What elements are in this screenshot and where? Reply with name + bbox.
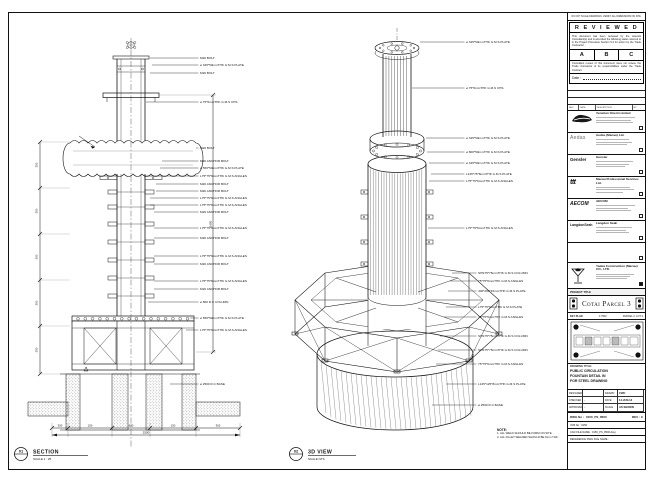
field-value: -	[583, 404, 604, 411]
checkbox	[639, 214, 643, 218]
border-note: DO NOT SCALE DRAWINGS. VERIFY ALL DIMENS…	[568, 13, 645, 21]
date-label: Date :	[572, 76, 581, 80]
consultant-row-venetian: Venetian Orient Limited	[568, 111, 645, 133]
reviewed-status-options: A B C	[570, 49, 643, 61]
checkbox	[639, 236, 643, 240]
checkbox-filled	[639, 282, 643, 286]
field-label: DRAWN	[604, 390, 618, 397]
date-col: DATE	[579, 105, 596, 110]
reviewed-paragraph-2: Consultant review of this document does …	[570, 61, 643, 74]
drawing-sheet: 30015060015030025003503003003003502650 M…	[0, 0, 650, 488]
reviewed-stamp: R E V I E W E D This document has been r…	[569, 22, 644, 84]
contractor-name: Yadea Construction (Macau) CO., LTD.	[596, 265, 643, 272]
reviewed-title: R E V I E W E D	[570, 23, 643, 33]
aecom-logo: AECOM	[570, 200, 596, 218]
field-label: SCALE	[604, 404, 618, 411]
consultant-name: Venetian Orient Limited	[596, 112, 643, 116]
checkbox	[639, 126, 643, 130]
blank-rule	[568, 84, 645, 91]
drawing-note: NOTE: 1. ALL WELD SHOULD BE FORM ON SITE…	[497, 428, 567, 439]
title-block-strip: DO NOT SCALE DRAWINGS. VERIFY ALL DIMENS…	[567, 13, 645, 469]
consultant-row-blank	[568, 243, 645, 263]
note-line: 2. ALL FILLET WELDED SHOULD BE 6mm THK.	[497, 436, 567, 440]
blank-rule	[568, 98, 645, 105]
status-option-b: B	[595, 50, 620, 60]
contractor-logo	[570, 265, 596, 286]
consultant-address	[596, 117, 643, 123]
banner-ornament-right	[635, 297, 644, 310]
consultant-row-langdon: LangdonSeah Langdon Seah	[568, 221, 645, 243]
ttt-logo: ttt	[570, 178, 596, 196]
project-title-banner: Cotai Parcel 3	[568, 296, 645, 313]
checkbox	[639, 256, 643, 260]
key-plan-header: KEY PLAN 1:7500 PARCEL 3, LOT 2	[568, 313, 645, 320]
field-label: CHECKED	[568, 397, 583, 404]
venetian-logo	[570, 112, 596, 130]
key-plan	[568, 320, 645, 364]
rev-col: REV	[568, 105, 579, 110]
reviewed-date-row: Date :	[570, 73, 643, 83]
dwg-number-row: DWG No : 0150_PS_8500 REV : C	[568, 413, 645, 422]
checkbox	[639, 148, 643, 152]
consultant-name: Gensler	[596, 156, 643, 160]
consultant-address	[596, 227, 643, 233]
title-block-fields: DESIGNED DRAWN CWC CHECKED - DATE 14-JUN…	[568, 390, 645, 413]
drawing-title-label: DRAWING TITLE:	[570, 365, 643, 368]
consultant-row-aedas: Aedas Aedas (Macau) Ltd.	[568, 133, 645, 155]
field-label: APPROVED	[568, 404, 583, 411]
status-option-c: C	[619, 50, 643, 60]
contractor-address	[596, 274, 643, 280]
field-value: 14-JUN-13	[618, 397, 644, 404]
cad-file-row: CAD FILE NAME : 0150_PS_8500.dwg	[568, 429, 645, 436]
dwg-no: 0150_PS_8500	[586, 415, 607, 419]
project-title: Cotai Parcel 3	[582, 300, 631, 308]
gensler-logo: Gensler	[570, 156, 596, 174]
key-plan-scale: 1:7500	[599, 313, 607, 319]
consultant-row-aecom: AECOM AECOM	[568, 199, 645, 221]
consultant-address	[596, 139, 643, 145]
sheet-border	[8, 12, 646, 470]
field-label: DATE	[604, 397, 618, 404]
consultant-address	[596, 161, 643, 167]
job-number-row: JOB No : 0150	[568, 422, 645, 429]
consultant-row-mps: ttt Macau Professional Services Ltd.	[568, 177, 645, 199]
consultant-name: Langdon Seah	[596, 222, 643, 226]
reference-file-row: REFERENCE DWG FILE NAME :	[568, 436, 645, 443]
field-value: AS SHOWN	[618, 404, 644, 411]
rev-value: REV : C	[632, 415, 643, 419]
key-plan-sub: PARCEL 3, LOT 2	[623, 313, 643, 319]
consultant-name: Aedas (Macau) Ltd.	[596, 134, 643, 138]
drawing-title-box: DRAWING TITLE: PUBLIC CIRCULATION FOUNTA…	[568, 364, 645, 390]
field-label: DESIGNED	[568, 390, 583, 397]
dwg-no-label: DWG No :	[570, 415, 584, 419]
consultant-address	[596, 187, 643, 193]
consultant-address	[596, 205, 643, 211]
consultant-name: AECOM	[596, 200, 643, 204]
checkbox	[639, 170, 643, 174]
contractor-row: Yadea Construction (Macau) CO., LTD.	[568, 263, 645, 289]
drawing-title-line: FOR STEEL DRAWING	[570, 379, 643, 384]
consultant-name: Macau Professional Services Ltd.	[596, 178, 643, 185]
field-value: CWC	[618, 390, 644, 397]
by-col: BY	[633, 105, 645, 110]
langdon-seah-logo: LangdonSeah	[570, 222, 596, 240]
status-option-a: A	[570, 50, 595, 60]
banner-ornament-left	[569, 297, 578, 310]
checkbox	[639, 192, 643, 196]
date-fill-line	[583, 76, 641, 80]
reviewed-paragraph: This document has been reviewed by the r…	[570, 33, 643, 49]
consultant-row-gensler: Gensler Gensler	[568, 155, 645, 177]
aedas-logo: Aedas	[570, 134, 596, 152]
blank-rule	[568, 91, 645, 98]
key-plan-map	[570, 321, 644, 361]
description-col: DESCRIPTION	[596, 105, 633, 110]
project-title-label: PROJECT TITLE	[568, 289, 645, 296]
key-plan-label: KEY PLAN	[570, 313, 583, 319]
field-value: -	[583, 397, 604, 404]
field-value	[583, 390, 604, 397]
